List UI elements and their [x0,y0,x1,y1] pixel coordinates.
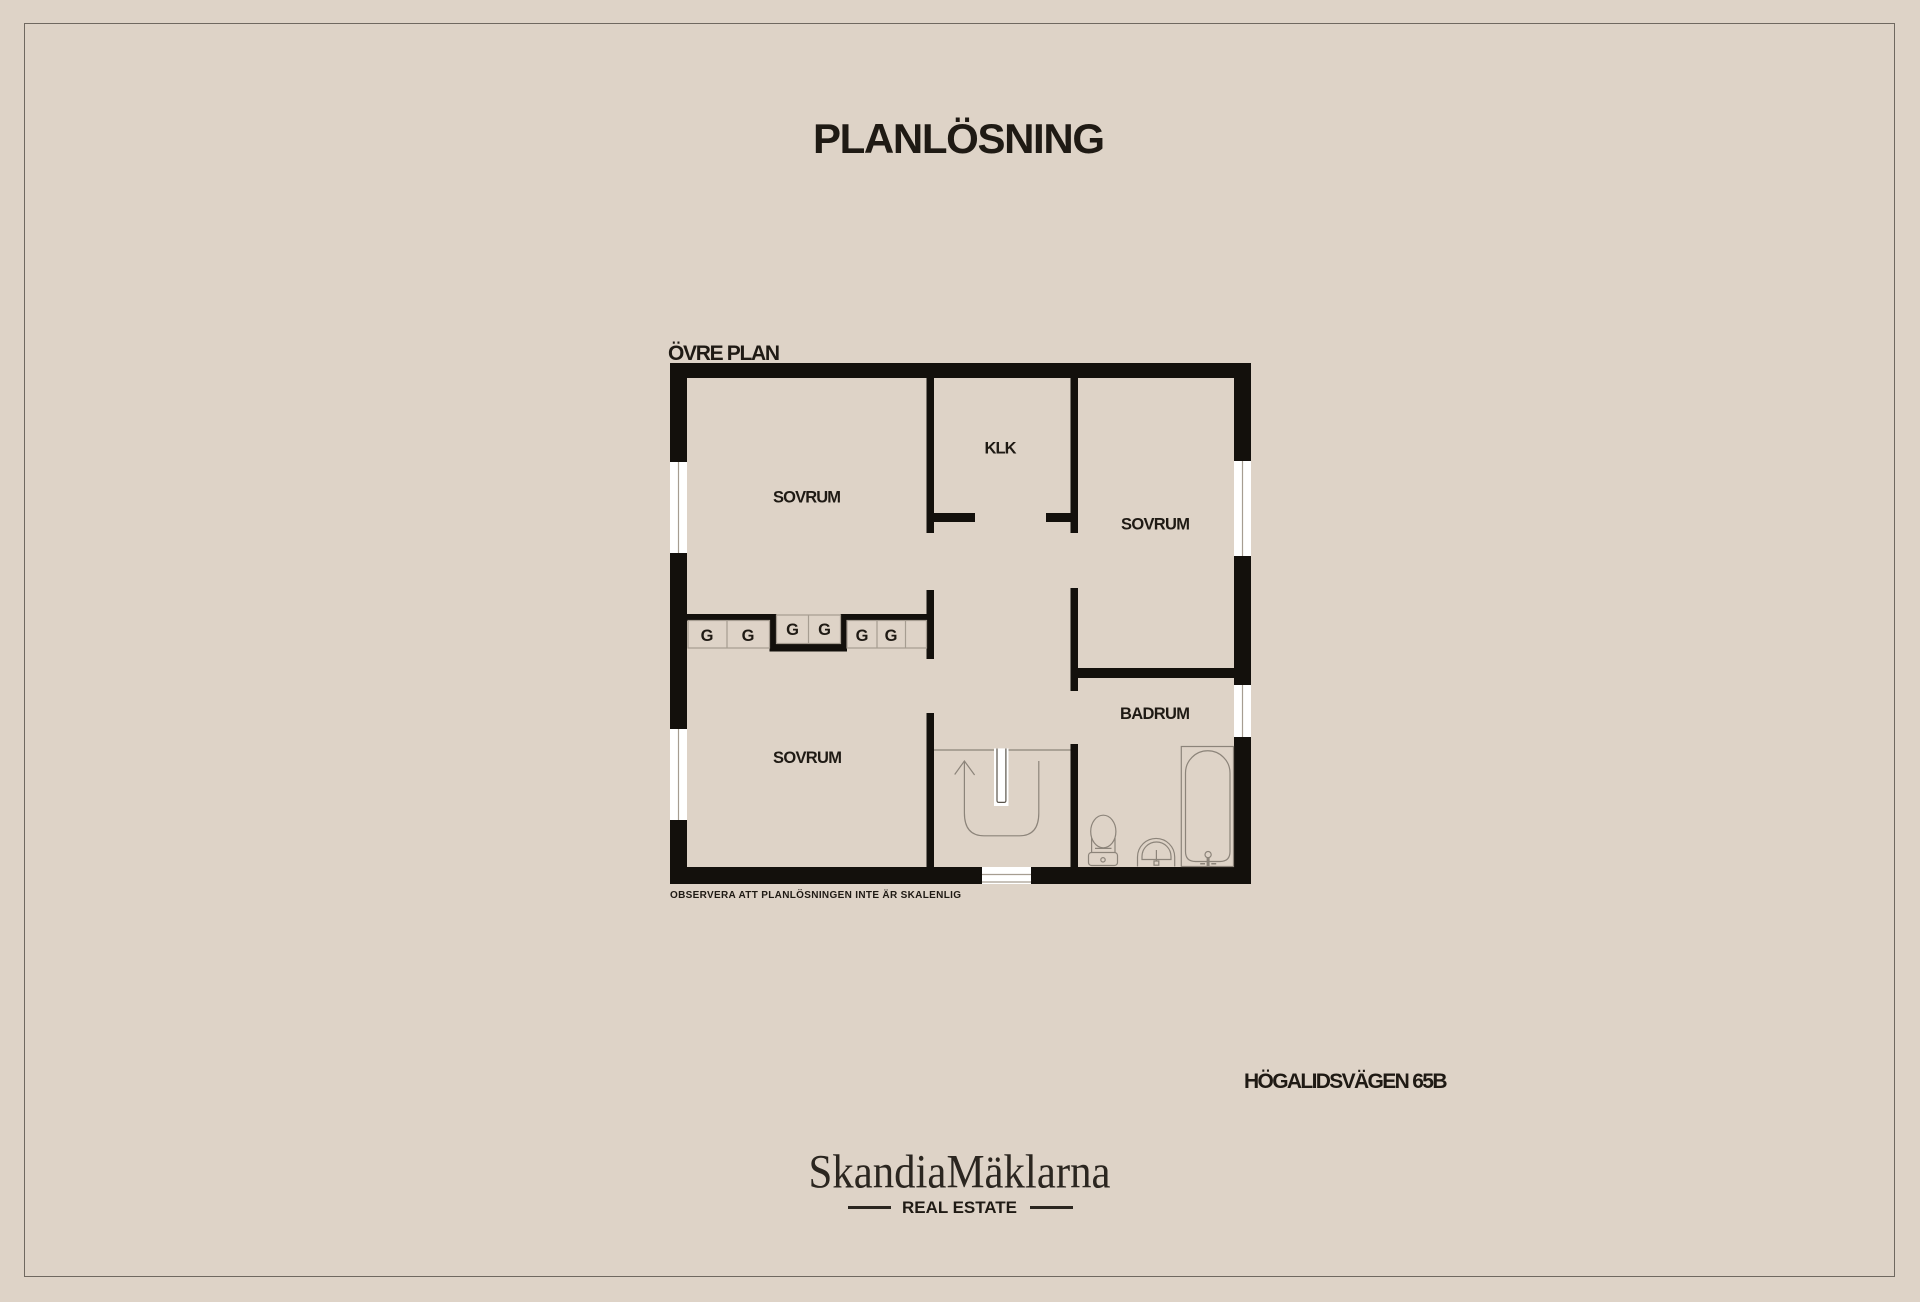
svg-text:SOVRUM: SOVRUM [773,749,842,767]
svg-text:BADRUM: BADRUM [1120,705,1190,723]
svg-text:KLK: KLK [985,440,1017,458]
svg-text:SOVRUM: SOVRUM [1121,516,1190,534]
svg-text:ÖVRE PLAN: ÖVRE PLAN [668,342,781,365]
svg-text:PLANLÖSNING: PLANLÖSNING [813,115,1110,162]
svg-text:SkandiaMäklarna: SkandiaMäklarna [809,1146,1111,1199]
svg-text:G: G [818,621,831,639]
svg-text:G: G [701,627,714,645]
svg-text:SOVRUM: SOVRUM [773,489,841,507]
svg-text:G: G [742,627,755,645]
svg-text:REAL ESTATE: REAL ESTATE [902,1198,1019,1217]
svg-text:G: G [885,627,898,645]
svg-text:OBSERVERA ATT PLANLÖSNINGEN IN: OBSERVERA ATT PLANLÖSNINGEN INTE ÄR SKAL… [670,888,962,901]
svg-text:HÖGALIDSVÄGEN 65B: HÖGALIDSVÄGEN 65B [1244,1070,1449,1093]
svg-text:G: G [856,627,869,645]
svg-text:G: G [786,621,799,639]
